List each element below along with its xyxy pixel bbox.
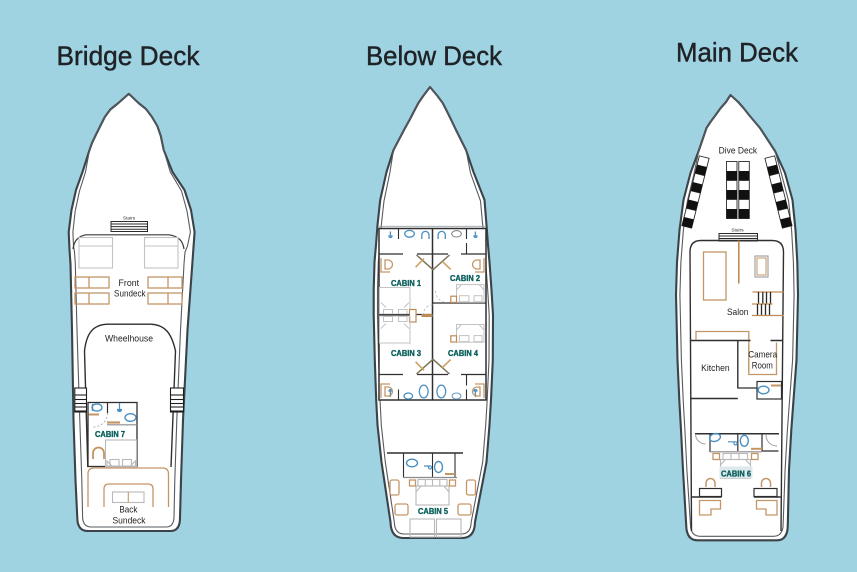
svg-text:CABIN 4: CABIN 4 bbox=[448, 348, 478, 358]
svg-text:CABIN 6: CABIN 6 bbox=[721, 469, 751, 479]
svg-text:Dive Deck: Dive Deck bbox=[719, 146, 758, 157]
svg-text:Below Deck: Below Deck bbox=[366, 41, 502, 71]
svg-text:CABIN 7: CABIN 7 bbox=[95, 429, 125, 439]
svg-text:CABIN 3: CABIN 3 bbox=[391, 348, 421, 358]
svg-text:Stairs: Stairs bbox=[731, 228, 744, 234]
svg-text:CABIN 5: CABIN 5 bbox=[418, 506, 448, 516]
svg-text:Back: Back bbox=[119, 505, 137, 516]
svg-text:CABIN 1: CABIN 1 bbox=[391, 278, 421, 288]
svg-text:Salon: Salon bbox=[727, 307, 749, 318]
svg-text:Bridge Deck: Bridge Deck bbox=[57, 41, 200, 71]
svg-text:Wheelhouse: Wheelhouse bbox=[105, 333, 153, 344]
svg-text:CABIN 2: CABIN 2 bbox=[450, 273, 480, 283]
svg-text:Stairs: Stairs bbox=[123, 216, 136, 222]
svg-text:Main Deck: Main Deck bbox=[676, 38, 798, 68]
svg-text:Sundeck: Sundeck bbox=[113, 516, 146, 527]
svg-text:Camera: Camera bbox=[748, 349, 778, 360]
svg-text:Room: Room bbox=[752, 361, 773, 372]
svg-text:Kitchen: Kitchen bbox=[701, 363, 730, 374]
svg-text:Sundeck: Sundeck bbox=[114, 288, 146, 299]
